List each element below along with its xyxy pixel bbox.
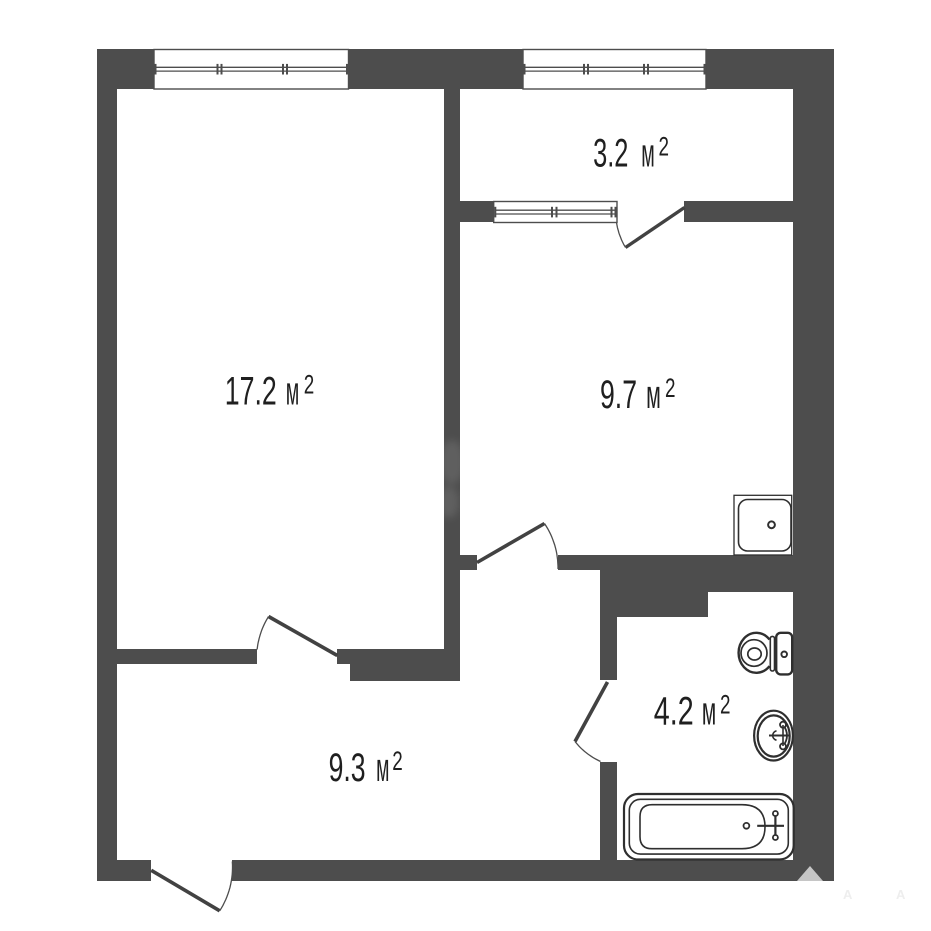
svg-text:2: 2: [659, 132, 670, 162]
svg-text:3.2: 3.2: [593, 132, 628, 176]
svg-text:А: А: [896, 887, 906, 902]
svg-text:м: м: [286, 370, 300, 414]
svg-text:9.3: 9.3: [329, 746, 366, 790]
svg-text:2: 2: [392, 746, 403, 776]
svg-text:2: 2: [304, 370, 315, 400]
svg-text:м: м: [641, 132, 655, 176]
svg-text:м: м: [646, 373, 661, 417]
svg-text:17.2: 17.2: [225, 370, 277, 414]
svg-text:2: 2: [720, 689, 731, 719]
svg-text:м: м: [702, 689, 716, 733]
svg-text:2: 2: [665, 373, 676, 403]
svg-text:4.2: 4.2: [654, 689, 694, 733]
svg-text:А: А: [843, 887, 853, 902]
svg-text:9.7: 9.7: [600, 373, 637, 417]
svg-text:м: м: [376, 746, 389, 790]
